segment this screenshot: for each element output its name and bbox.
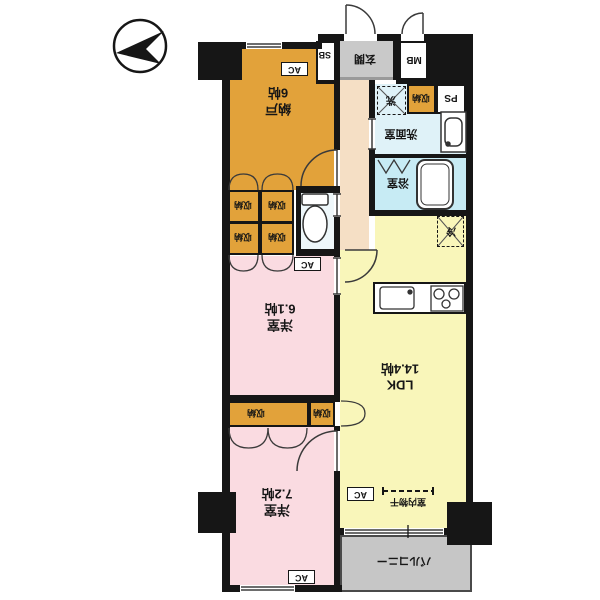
wall	[334, 41, 340, 150]
entrance-door-swing	[346, 5, 375, 34]
wall	[466, 34, 473, 535]
indoor-drying-label: 室内物干	[384, 497, 432, 507]
mb-door-swing	[402, 13, 423, 34]
compass-north-arrow	[114, 20, 166, 72]
entrance-step	[340, 77, 393, 80]
fridge-label: 冷	[444, 225, 458, 236]
wall	[334, 426, 340, 431]
wall	[334, 295, 340, 401]
wall	[222, 395, 340, 402]
mb-doorway	[401, 34, 424, 41]
wall	[296, 186, 340, 193]
shaft	[428, 41, 466, 80]
closet-label: 収納	[267, 232, 287, 242]
wall	[369, 80, 375, 118]
room-bedroom1-label: 洋室 6.1帖	[250, 300, 310, 333]
wall	[318, 34, 472, 41]
closet-label: 収納	[411, 93, 431, 103]
window	[344, 528, 444, 535]
closet-label: 収納	[246, 408, 266, 418]
wall	[393, 41, 399, 80]
bathroom-label: 浴室	[384, 176, 412, 188]
entrance-label: 玄関	[345, 52, 385, 64]
ac-unit-label: AC	[347, 487, 374, 501]
closet-label: 収納	[312, 408, 332, 418]
entrance-doorway	[344, 34, 377, 41]
pillar	[198, 42, 242, 80]
ac-unit-label: AC	[281, 62, 308, 76]
floor-plan: 納戸 6帖 洋室 6.1帖 洋室 7.2帖 LDK 14.4帖 バルコニー 玄関…	[0, 0, 600, 600]
closet-cell	[228, 401, 309, 427]
room-ldk-label: LDK 14.4帖	[368, 360, 432, 393]
ps-label: PS	[441, 92, 461, 103]
wall	[372, 154, 466, 158]
wall	[296, 186, 301, 256]
window	[246, 42, 282, 49]
closet-label: 収納	[267, 200, 287, 210]
washroom-label: 洗面室	[381, 127, 421, 139]
wall	[296, 249, 340, 256]
mb-label: MB	[403, 54, 425, 65]
ac-unit-label: AC	[288, 570, 315, 584]
ac-unit-label: AC	[294, 257, 321, 271]
closet-label: 収納	[233, 232, 253, 242]
pillar	[447, 502, 492, 545]
room-toilet	[301, 193, 334, 249]
sb-label: SB	[322, 50, 331, 60]
room-nando-label: 納戸 6帖	[248, 84, 308, 117]
closet-label: 収納	[233, 200, 253, 210]
wall	[316, 80, 340, 84]
hallway	[340, 80, 369, 250]
window	[240, 585, 295, 592]
pillar	[198, 492, 236, 533]
room-bedroom2-label: 洋室 7.2帖	[247, 485, 307, 518]
wall	[369, 149, 375, 216]
laundry-label: 洗	[384, 94, 398, 105]
balcony-label: バルコニー	[368, 554, 440, 566]
wall	[396, 80, 466, 84]
